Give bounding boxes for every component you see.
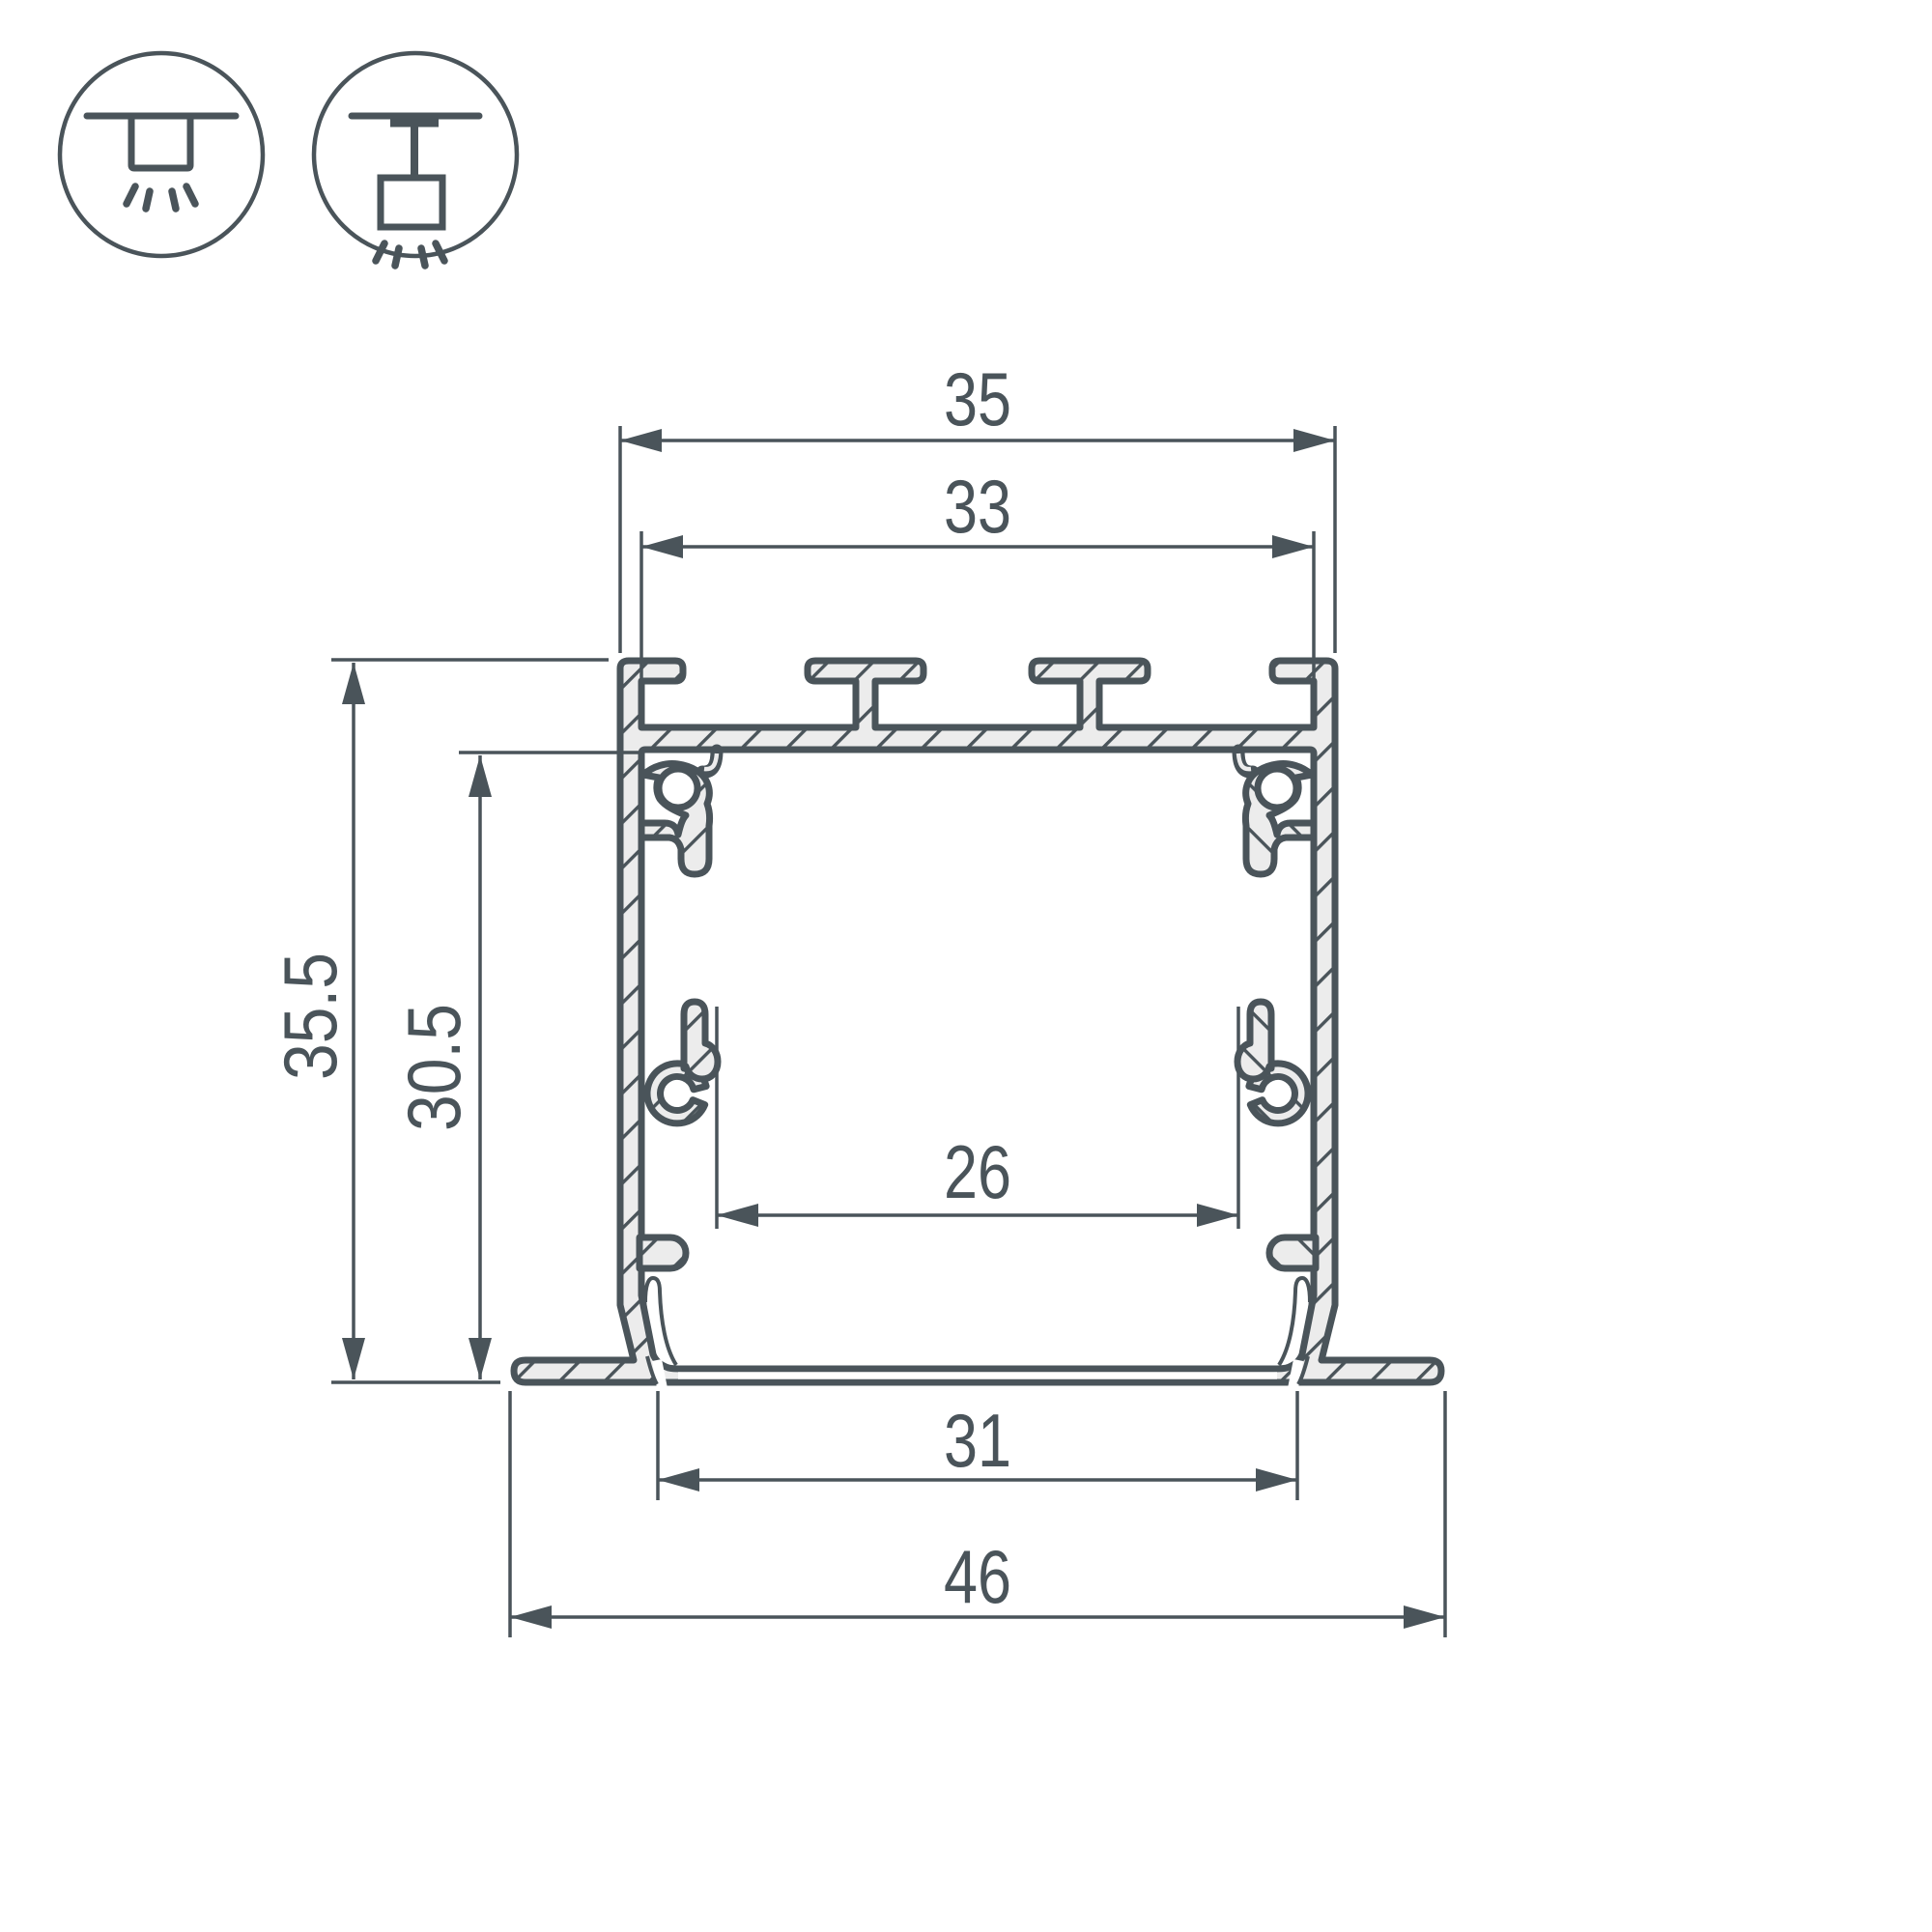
svg-text:35.5: 35.5 [268, 952, 353, 1080]
svg-text:31: 31 [944, 1398, 1011, 1483]
svg-text:30.5: 30.5 [391, 1004, 476, 1131]
svg-text:35: 35 [944, 356, 1011, 441]
svg-text:33: 33 [944, 464, 1011, 549]
svg-text:46: 46 [944, 1534, 1011, 1619]
svg-text:26: 26 [944, 1129, 1011, 1214]
